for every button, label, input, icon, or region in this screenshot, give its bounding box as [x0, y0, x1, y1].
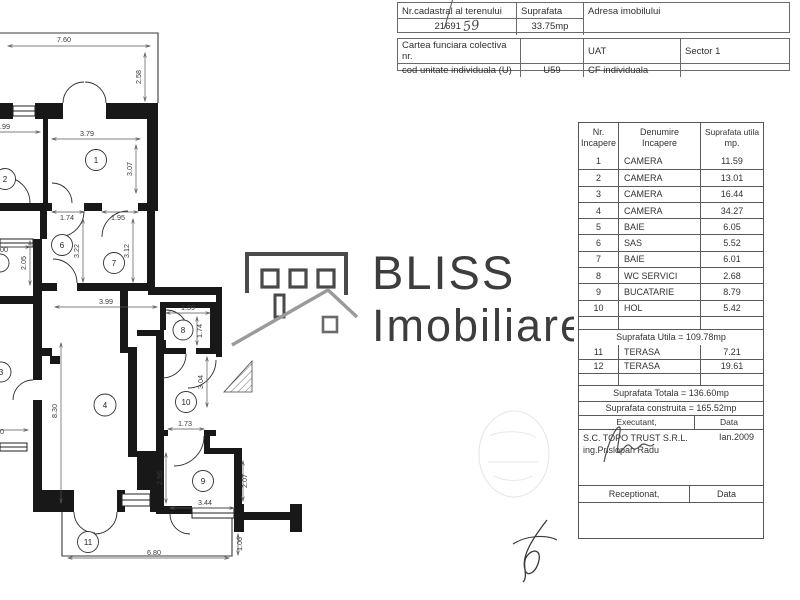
table-row: 8WC SERVICI2.68 — [579, 267, 763, 283]
table-row: 12TERASA19.61 — [579, 359, 763, 373]
nr-cadastral-handwritten: 59 — [462, 18, 480, 35]
receptionat-data-label: Data — [689, 486, 763, 502]
table-row: 1CAMERA11.59 — [579, 153, 763, 169]
dim-label: 1.73 — [178, 419, 192, 428]
bliss-imobiliare-logo: BLISS Imobiliare — [228, 240, 574, 352]
dim-label: 3.07 — [125, 162, 134, 176]
logo-house-icon — [232, 254, 357, 345]
dim-label: 0 — [0, 427, 4, 436]
room-number: 4 — [103, 401, 108, 410]
room-rows: 1CAMERA11.592CAMERA13.013CAMERA16.444CAM… — [579, 153, 763, 316]
table-cell: 9 — [579, 284, 618, 299]
dim-label: 1.06 — [235, 537, 244, 551]
executant-data-label: Data — [694, 416, 763, 429]
table-cell: 5.52 — [700, 235, 763, 250]
table-row: 3CAMERA16.44 — [579, 186, 763, 202]
table-row: 2CAMERA13.01 — [579, 169, 763, 185]
table-cell: CAMERA — [618, 170, 700, 185]
table-cell: 12 — [579, 360, 618, 373]
room-number: 9 — [201, 477, 206, 486]
room-number: 6 — [60, 241, 65, 250]
table-cell: TERASA — [618, 360, 700, 373]
table-cell: CAMERA — [618, 153, 700, 169]
blank-row — [579, 316, 763, 329]
uat-label: UAT — [584, 39, 681, 64]
table-cell: 11 — [579, 345, 618, 359]
blank-row — [579, 502, 763, 538]
hatched-triangle-symbol — [224, 361, 252, 392]
table-cell: 2 — [579, 170, 618, 185]
dim-label: .99 — [0, 122, 10, 131]
table-cell: BUCATARIE — [618, 284, 700, 299]
cartea-funciara-table: Cartea funciara colectiva nr. UAT Sector… — [397, 38, 790, 71]
scanned-cadastral-document: 7.60 2.58 3.79 3.07 .99 1.74 1.95 00 2.0… — [0, 0, 800, 600]
table-row: 10HOL5.42 — [579, 300, 763, 316]
table-cell: 19.61 — [700, 360, 763, 373]
adresa-label: Adresa imobilului — [588, 4, 785, 18]
dim-label: 00 — [0, 245, 8, 254]
table-cell: WC SERVICI — [618, 268, 700, 283]
dim-label: 3.22 — [72, 244, 81, 258]
nr-cadastral-cell: Nr.cadastral al terenului 21691 59 — [398, 3, 517, 35]
nr-cadastral-value-row: 21691 59 — [398, 18, 516, 34]
cod-value: U59 — [521, 64, 584, 77]
dim-label: 2.58 — [134, 70, 143, 84]
table-cell: 7.21 — [700, 345, 763, 359]
cf-label: CF individuala — [584, 64, 681, 77]
dim-label: 1.74 — [60, 213, 74, 222]
table-cell: HOL — [618, 301, 700, 316]
table-cell: 6 — [579, 235, 618, 250]
dim-label: 2.07 — [240, 474, 249, 488]
table-cell: 2.68 — [700, 268, 763, 283]
room-area-table: Nr.Incapere DenumireIncapere Suprafata u… — [578, 122, 764, 539]
nr-cadastral-value: 21691 — [435, 21, 461, 32]
dim-label: 2.96 — [155, 471, 164, 485]
adresa-cell: Adresa imobilului — [584, 3, 789, 35]
table-cell: 8.79 — [700, 284, 763, 299]
room-number: 3 — [0, 368, 4, 377]
header-nr: Nr.Incapere — [579, 123, 618, 153]
cod-label: cod unitate individuala (U) — [398, 64, 521, 77]
dim-label: 2.05 — [19, 256, 28, 270]
suprafata-label: Suprafata — [521, 4, 579, 18]
table-row: 4CAMERA34.27 — [579, 202, 763, 218]
logo-tagline: Imobiliare — [372, 300, 574, 351]
header-denumire: DenumireIncapere — [618, 123, 700, 153]
room-number: 10 — [182, 398, 191, 407]
cadastral-header-table: Nr.cadastral al terenului 21691 59 Supra… — [397, 2, 790, 33]
dim-label: 8.30 — [50, 404, 59, 418]
dim-label: 7.60 — [57, 35, 71, 44]
cf-value — [681, 64, 789, 77]
table-cell: TERASA — [618, 345, 700, 359]
dim-label: 3.79 — [80, 129, 94, 138]
table-cell: CAMERA — [618, 187, 700, 202]
room-number: 1 — [94, 156, 99, 165]
table-cell: 8 — [579, 268, 618, 283]
faint-stamp — [476, 406, 554, 504]
executant-signature — [596, 416, 660, 468]
table-row: 6SAS5.52 — [579, 234, 763, 250]
table-cell: 1 — [579, 153, 618, 169]
suprafata-totala-row: Suprafata Totala = 136.60mp — [579, 385, 763, 401]
suprafata-construita-row: Suprafata construita = 165.52mp — [579, 401, 763, 415]
table-cell: 3 — [579, 187, 618, 202]
dim-label: 3.04 — [196, 375, 205, 389]
table-cell: 11.59 — [700, 153, 763, 169]
receptionat-label: Receptionat, — [579, 486, 689, 502]
table-row: 7BAIE6.01 — [579, 251, 763, 267]
table-cell: BAIE — [618, 252, 700, 267]
table-cell: 16.44 — [700, 187, 763, 202]
room-number: 2 — [3, 175, 8, 184]
table-cell: 34.27 — [700, 203, 763, 218]
dim-label: 1.95 — [111, 213, 125, 222]
dim-label: 3.12 — [122, 244, 131, 258]
blank-row — [579, 373, 763, 385]
dim-label: 6.80 — [147, 548, 161, 557]
table-cell: 7 — [579, 252, 618, 267]
executant-date: Ian.2009 — [719, 432, 754, 442]
nr-cadastral-label: Nr.cadastral al terenului — [402, 4, 512, 18]
table-header-row: Nr.Incapere DenumireIncapere Suprafata u… — [579, 123, 763, 153]
dim-label: 1.74 — [195, 324, 204, 338]
table-row: 9BUCATARIE8.79 — [579, 283, 763, 299]
table-cell: 10 — [579, 301, 618, 316]
table-cell: SAS — [618, 235, 700, 250]
table-cell: 13.01 — [700, 170, 763, 185]
cartea-label: Cartea funciara colectiva nr. — [398, 39, 521, 64]
bottom-signature — [503, 512, 567, 586]
dim-label: 3.44 — [198, 498, 212, 507]
table-row: 5BAIE6.05 — [579, 218, 763, 234]
table-cell: 6.01 — [700, 252, 763, 267]
table-cell: 5 — [579, 219, 618, 234]
table-cell: BAIE — [618, 219, 700, 234]
uat-value: Sector 1 — [681, 39, 789, 64]
receptionat-row: Receptionat, Data — [579, 485, 763, 502]
table-cell: 4 — [579, 203, 618, 218]
room-number: 11 — [84, 538, 93, 547]
table-cell: CAMERA — [618, 203, 700, 218]
dim-label: 3.99 — [99, 297, 113, 306]
terase-rows: 11TERASA7.2112TERASA19.61 — [579, 345, 763, 373]
room-number: 7 — [112, 259, 117, 268]
header-suprafata: Suprafata utilamp. — [700, 123, 763, 153]
suprafata-utila-row: Suprafata Utila = 109.78mp — [579, 329, 763, 345]
suprafata-value: 33.75mp — [517, 18, 583, 34]
table-cell: 6.05 — [700, 219, 763, 234]
room-number: 8 — [181, 326, 186, 335]
table-cell: 5.42 — [700, 301, 763, 316]
logo-name: BLISS — [372, 246, 515, 299]
suprafata-cell: Suprafata 33.75mp — [517, 3, 584, 35]
cartea-value — [521, 39, 584, 64]
dim-label: 1.59 — [181, 303, 195, 312]
table-row: 11TERASA7.21 — [579, 345, 763, 359]
